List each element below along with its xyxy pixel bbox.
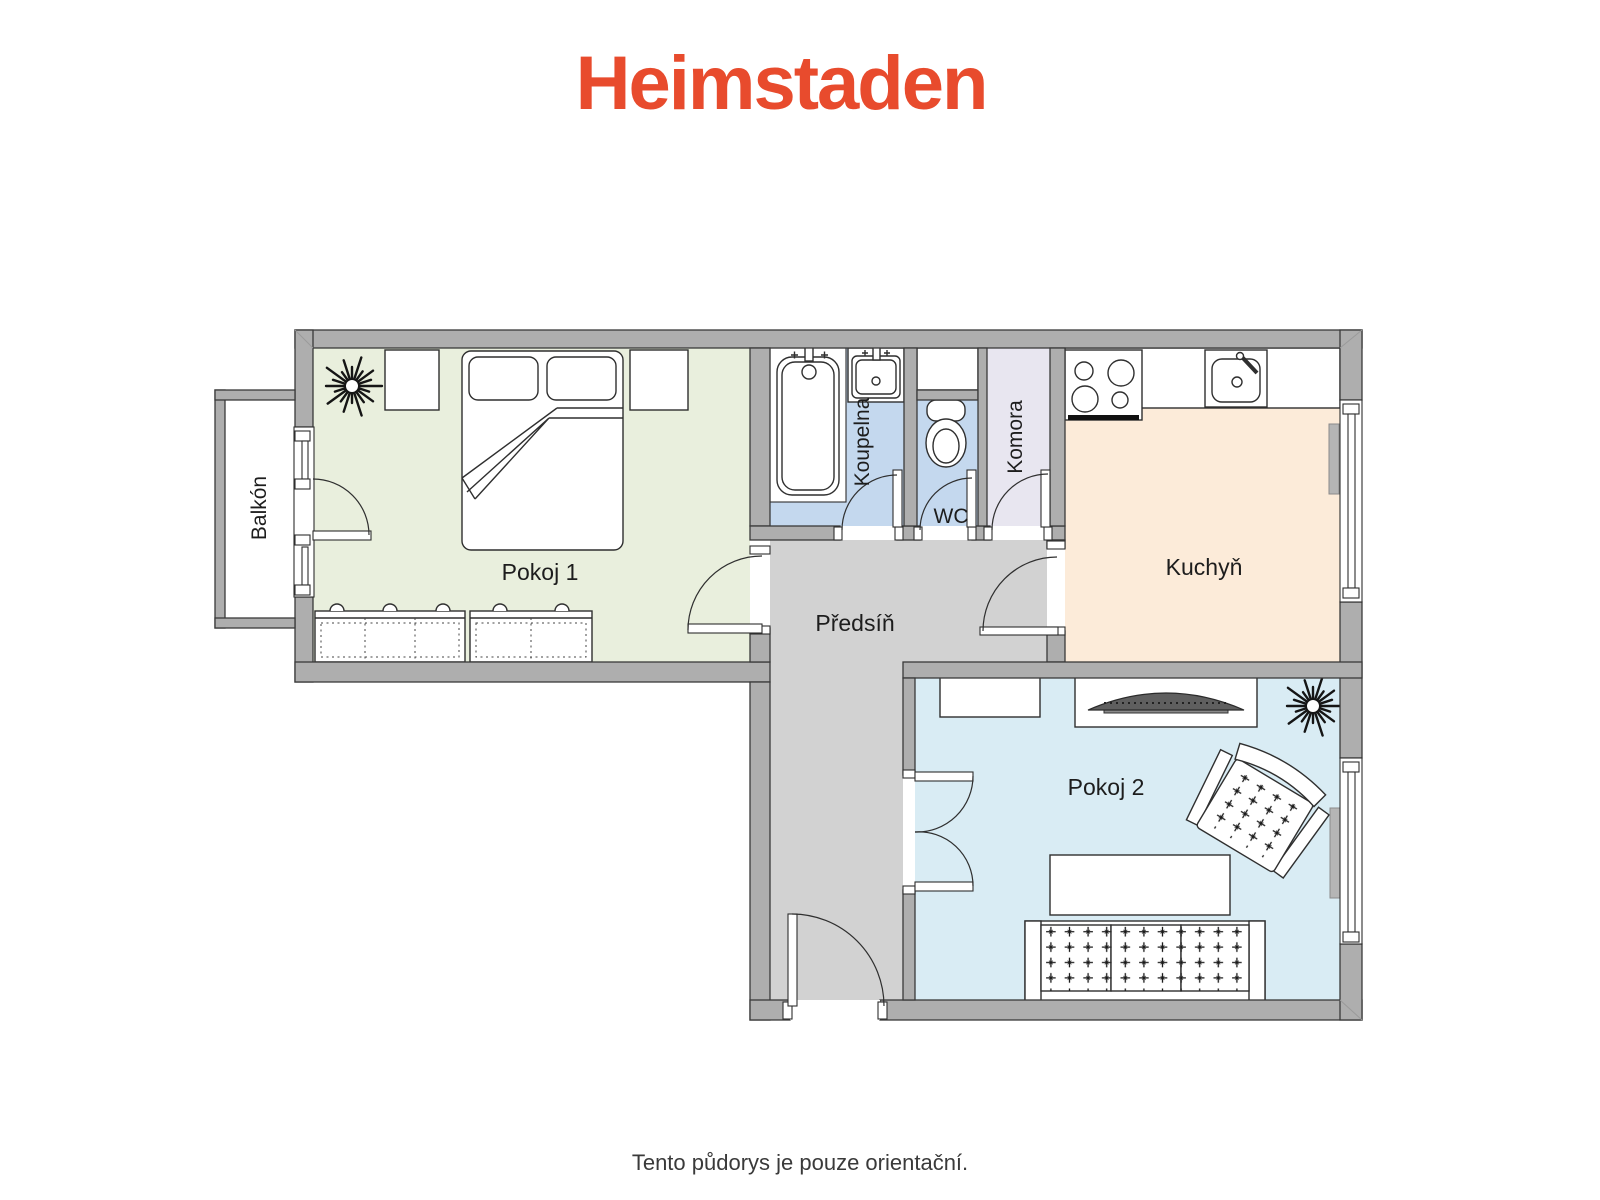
pokoj2-window-icon — [1340, 758, 1362, 944]
kuchyn-window-icon — [1340, 400, 1362, 602]
kitchen-sink-icon — [1205, 350, 1267, 407]
pillow-icon — [547, 357, 616, 400]
stove-icon — [1065, 350, 1142, 420]
room-label-komora: Komora — [1004, 400, 1027, 474]
wardrobe-icon — [315, 604, 465, 662]
sink-icon — [848, 346, 904, 402]
balcony-window-icon — [294, 427, 314, 597]
room-label-pokoj1: Pokoj 1 — [502, 559, 579, 585]
duct-box — [917, 348, 978, 390]
nightstand-right — [630, 350, 688, 410]
bathtub-icon — [777, 357, 839, 495]
room-label-kuchyn: Kuchyň — [1166, 554, 1243, 580]
shelf — [940, 677, 1040, 717]
toilet-icon — [926, 400, 966, 467]
tv-stand-icon — [1075, 677, 1257, 727]
double-bed-icon — [462, 351, 623, 550]
floorplan: Balkón Pokoj 1 Koupelna WC Komora Kuchyň… — [0, 0, 1600, 1200]
room-label-wc: WC — [934, 505, 969, 528]
disclaimer-text: Tento půdorys je pouze orientační. — [0, 1150, 1600, 1176]
pillow-icon — [469, 357, 538, 400]
sofa-icon — [1025, 921, 1265, 1003]
coffee-table — [1050, 855, 1230, 915]
radiator — [1330, 808, 1340, 898]
radiator — [1329, 424, 1339, 494]
wardrobe-icon — [470, 604, 592, 662]
room-label-pokoj2: Pokoj 2 — [1068, 774, 1145, 800]
room-label-predsin: Předsíň — [815, 610, 894, 636]
room-label-balkon: Balkón — [248, 476, 271, 540]
room-label-koupelna: Koupelna — [851, 397, 874, 486]
nightstand-left — [385, 350, 439, 410]
